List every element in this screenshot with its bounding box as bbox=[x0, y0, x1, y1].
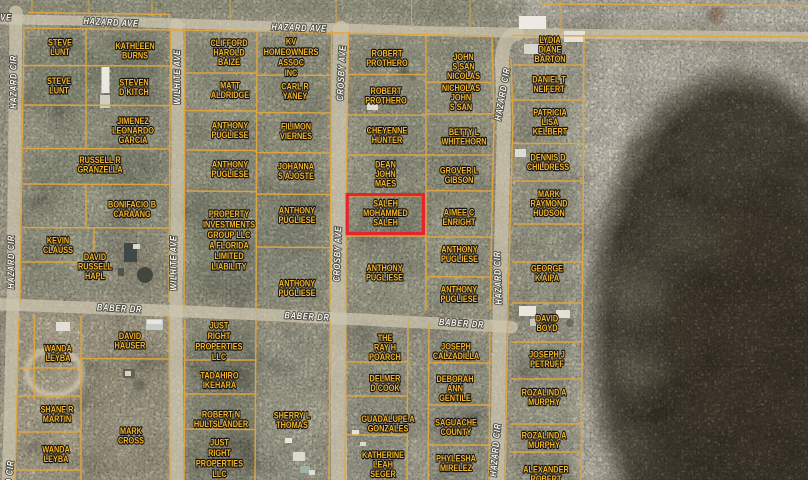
svg-text:STEVELUNT: STEVELUNT bbox=[48, 37, 72, 58]
svg-text:ROZALIND AMURPHY: ROZALIND AMURPHY bbox=[522, 430, 567, 451]
svg-text:ROBERTPROTHERO: ROBERTPROTHERO bbox=[365, 85, 407, 106]
svg-text:JOHANNAS AJOSTE: JOHANNAS AJOSTE bbox=[278, 161, 314, 182]
svg-text:HAZARD CIR: HAZARD CIR bbox=[8, 55, 19, 109]
svg-text:ANTHONYPUGLIESE: ANTHONYPUGLIESE bbox=[279, 205, 316, 226]
svg-text:BABER DR: BABER DR bbox=[97, 301, 143, 314]
svg-text:WILHITE AVE: WILHITE AVE bbox=[171, 49, 182, 104]
svg-text:ANTHONYPUGLIESE: ANTHONYPUGLIESE bbox=[279, 278, 316, 299]
svg-text:ROBERT NHULTSLANDER: ROBERT NHULTSLANDER bbox=[194, 409, 248, 430]
svg-text:STEVELUNT: STEVELUNT bbox=[47, 75, 71, 96]
svg-text:HAZARD AVE: HAZARD AVE bbox=[271, 21, 327, 34]
svg-text:CARL RYANEY: CARL RYANEY bbox=[281, 81, 308, 102]
svg-text:HAZARD CIR: HAZARD CIR bbox=[491, 251, 504, 305]
svg-text:ANTHONYPUGLIESE: ANTHONYPUGLIESE bbox=[366, 262, 403, 283]
svg-text:SAGUACHECOUNTY: SAGUACHECOUNTY bbox=[435, 417, 477, 438]
svg-text:DAVIDBOYD: DAVIDBOYD bbox=[536, 313, 558, 334]
svg-text:WILHITE AVE: WILHITE AVE bbox=[168, 235, 179, 290]
svg-text:CHEYENNEHUNTER: CHEYENNEHUNTER bbox=[367, 125, 408, 146]
svg-text:FILIMONVIERNES: FILIMONVIERNES bbox=[280, 121, 312, 142]
svg-text:BABER DR: BABER DR bbox=[284, 309, 330, 322]
svg-text:SHERRY LTHOMAS: SHERRY LTHOMAS bbox=[274, 410, 311, 431]
svg-text:RUSSELL RGRANZELLA: RUSSELL RGRANZELLA bbox=[77, 154, 122, 175]
svg-text:BONIFACIO BCARAANG: BONIFACIO BCARAANG bbox=[108, 199, 156, 220]
svg-text:KEVINCLAUSS: KEVINCLAUSS bbox=[43, 235, 73, 256]
svg-text:WANDALEYBA: WANDALEYBA bbox=[44, 343, 72, 364]
svg-text:GUADALUPE AGONZALES: GUADALUPE AGONZALES bbox=[361, 413, 414, 434]
svg-text:SHANE RMARTIN: SHANE RMARTIN bbox=[41, 404, 74, 425]
svg-text:ANTHONYPUGLIESE: ANTHONYPUGLIESE bbox=[212, 120, 249, 141]
svg-text:ROBERTPROTHERO: ROBERTPROTHERO bbox=[366, 48, 408, 69]
svg-text:ANTHONYPUGLIESE: ANTHONYPUGLIESE bbox=[441, 284, 478, 305]
svg-text:DAVIDHAUSER: DAVIDHAUSER bbox=[115, 330, 146, 351]
svg-text:TADAHIROIKEHARA: TADAHIROIKEHARA bbox=[200, 370, 238, 391]
svg-text:AIMEE CENRIGHT: AIMEE CENRIGHT bbox=[443, 207, 477, 228]
svg-text:DELMERD COOK: DELMERD COOK bbox=[370, 373, 401, 394]
svg-text:WANDALEYBA: WANDALEYBA bbox=[42, 444, 70, 465]
svg-text:ANTHONYPUGLIESE: ANTHONYPUGLIESE bbox=[212, 159, 249, 180]
svg-text:STEVEND KITCH: STEVEND KITCH bbox=[119, 77, 149, 98]
svg-text:DEANJOHNMAES: DEANJOHNMAES bbox=[375, 158, 396, 188]
svg-text:CROSBY AVE: CROSBY AVE bbox=[331, 226, 344, 282]
svg-text:GEORGEK AIPA: GEORGEK AIPA bbox=[531, 263, 563, 284]
svg-text:DANIEL TNEIFERT: DANIEL TNEIFERT bbox=[532, 74, 566, 95]
svg-text:JOSEPH JPETRUFF: JOSEPH JPETRUFF bbox=[529, 349, 565, 370]
svg-text:DENNIS DCHILDRESS: DENNIS DCHILDRESS bbox=[527, 152, 570, 173]
svg-text:GROVER LGIBSON: GROVER LGIBSON bbox=[440, 165, 478, 186]
svg-text:HAZARD CIR: HAZARD CIR bbox=[5, 235, 16, 289]
svg-text:MARKCROSS: MARKCROSS bbox=[118, 425, 144, 446]
svg-text:PHYLESHAMIRELEZ: PHYLESHAMIRELEZ bbox=[436, 453, 476, 474]
svg-text:ANTHONYPUGLIESE: ANTHONYPUGLIESE bbox=[441, 243, 478, 264]
svg-text:ROZALIND AMURPHY: ROZALIND AMURPHY bbox=[522, 387, 567, 408]
svg-text:HAZARD AVE: HAZARD AVE bbox=[0, 12, 12, 23]
